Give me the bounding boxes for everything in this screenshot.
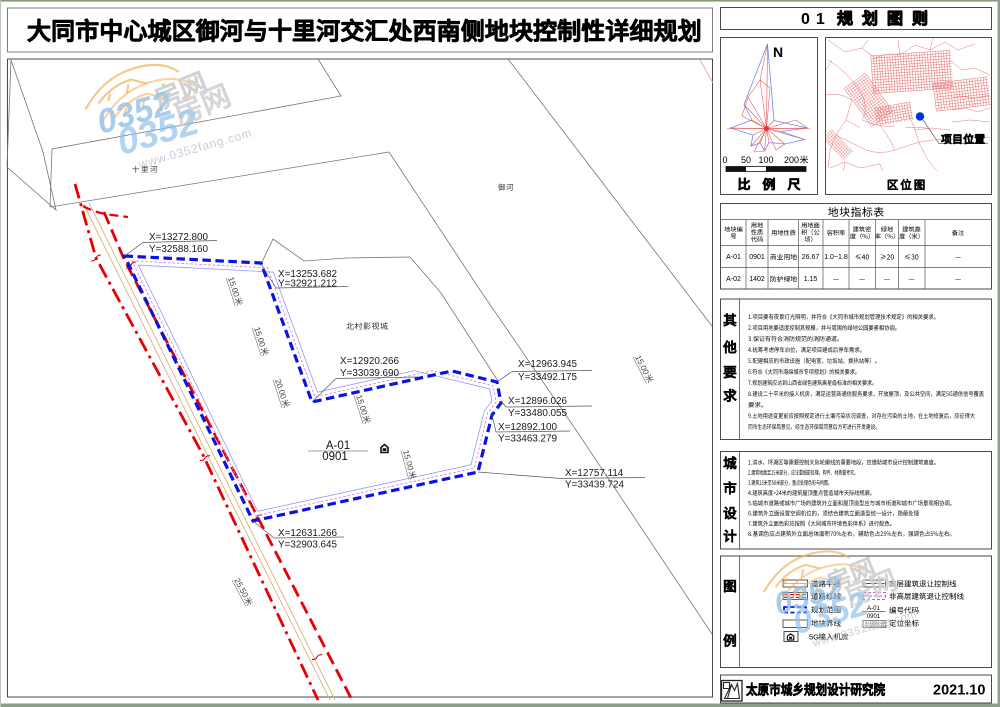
svg-text:1402: 1402 xyxy=(749,276,765,283)
svg-text:X=12896.026: X=12896.026 xyxy=(508,396,568,407)
svg-text:0901: 0901 xyxy=(322,451,348,463)
svg-text:1.0~1.8: 1.0~1.8 xyxy=(824,254,848,261)
svg-text:A-02: A-02 xyxy=(726,276,741,283)
svg-text:A-01: A-01 xyxy=(867,606,880,612)
svg-text:0901: 0901 xyxy=(749,254,765,261)
svg-text:200: 200 xyxy=(784,155,799,165)
svg-text:0: 0 xyxy=(722,155,727,165)
svg-text:A-01: A-01 xyxy=(726,254,741,261)
svg-text:X=12963.945: X=12963.945 xyxy=(518,359,578,370)
svg-text:Y=33463.279: Y=33463.279 xyxy=(498,434,558,445)
svg-text:Y=32903.645: Y=32903.645 xyxy=(278,540,338,551)
svg-text:N: N xyxy=(773,44,783,60)
svg-text:50: 50 xyxy=(741,155,751,165)
svg-text:Y=32588.160: Y=32588.160 xyxy=(149,244,209,255)
svg-text:Y=33480.055: Y=33480.055 xyxy=(508,408,568,419)
svg-text:01: 01 xyxy=(801,11,831,28)
svg-text:2021.10: 2021.10 xyxy=(933,683,985,699)
svg-text:X=12757.114: X=12757.114 xyxy=(565,468,624,479)
svg-text:100: 100 xyxy=(758,155,773,165)
svg-text:Y=33439.724: Y=33439.724 xyxy=(565,480,625,491)
svg-text:1.15: 1.15 xyxy=(804,276,818,283)
svg-text:Y=33492.175: Y=33492.175 xyxy=(518,372,578,383)
svg-text:26.67: 26.67 xyxy=(802,254,820,261)
svg-text:X=12920.266: X=12920.266 xyxy=(340,356,400,367)
